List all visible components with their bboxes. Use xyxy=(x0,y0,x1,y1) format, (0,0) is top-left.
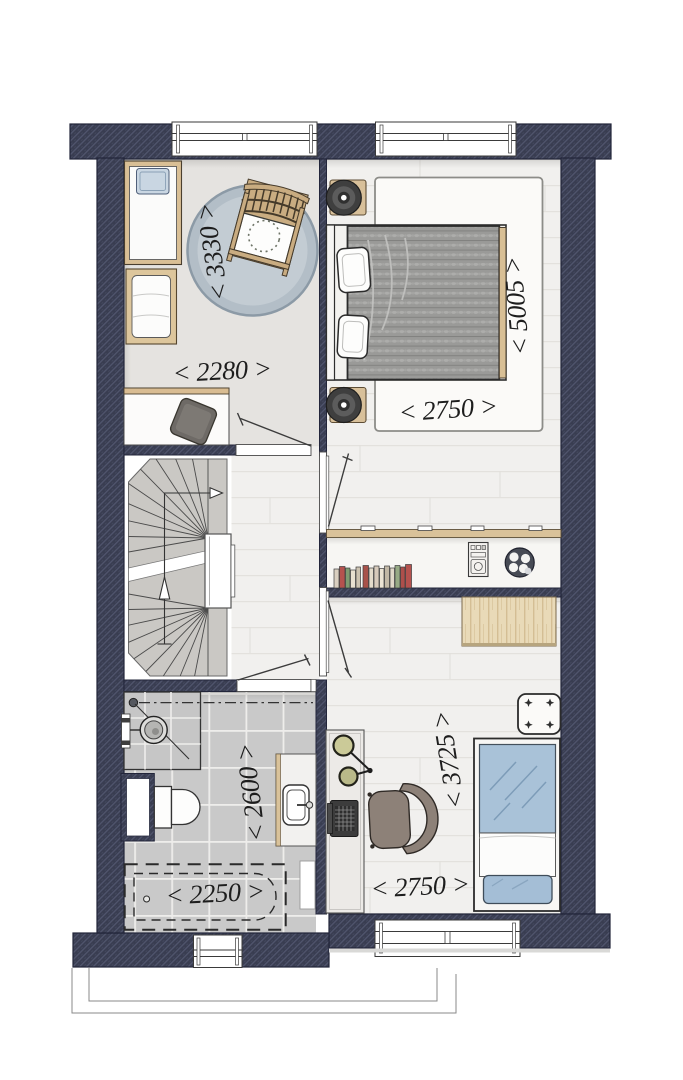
svg-text:< 2250 >: < 2250 > xyxy=(165,875,265,910)
svg-text:< 2280 >: < 2280 > xyxy=(172,353,272,388)
svg-text:< 2750 >: < 2750 > xyxy=(370,868,470,903)
